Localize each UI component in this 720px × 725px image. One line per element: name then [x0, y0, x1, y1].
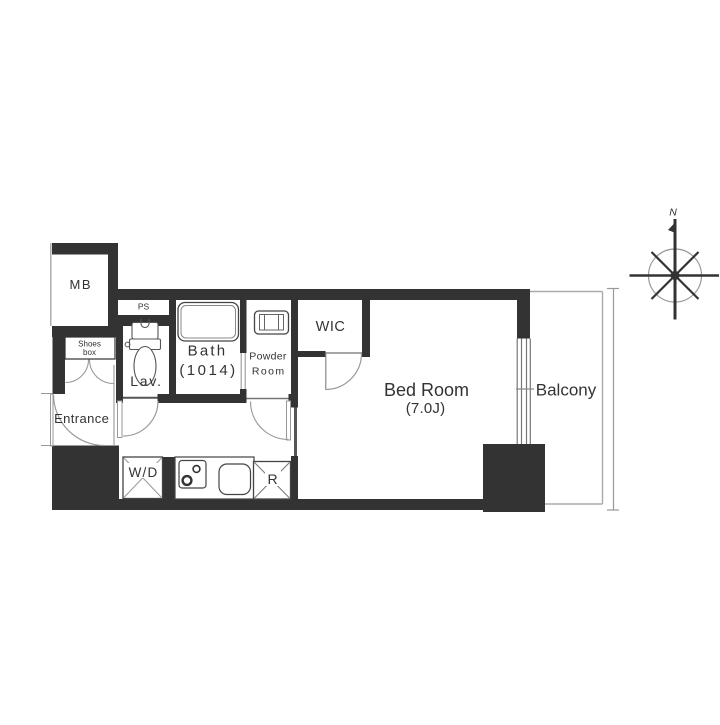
- svg-text:Room: Room: [252, 366, 286, 378]
- svg-text:box: box: [83, 348, 96, 357]
- svg-text:(1014): (1014): [179, 362, 237, 379]
- svg-text:W/D: W/D: [129, 465, 159, 480]
- svg-text:Powder: Powder: [249, 351, 287, 363]
- svg-text:(7.0J): (7.0J): [406, 400, 446, 417]
- svg-text:Bath: Bath: [188, 343, 228, 360]
- svg-text:Balcony: Balcony: [536, 381, 597, 400]
- svg-text:PS: PS: [138, 302, 150, 312]
- svg-text:WIC: WIC: [316, 319, 346, 335]
- svg-text:N: N: [669, 207, 677, 219]
- svg-text:Entrance: Entrance: [54, 411, 109, 426]
- svg-text:R: R: [267, 471, 277, 487]
- svg-text:Lav.: Lav.: [130, 373, 163, 389]
- svg-text:MB: MB: [70, 277, 93, 292]
- svg-text:Bed Room: Bed Room: [384, 380, 469, 400]
